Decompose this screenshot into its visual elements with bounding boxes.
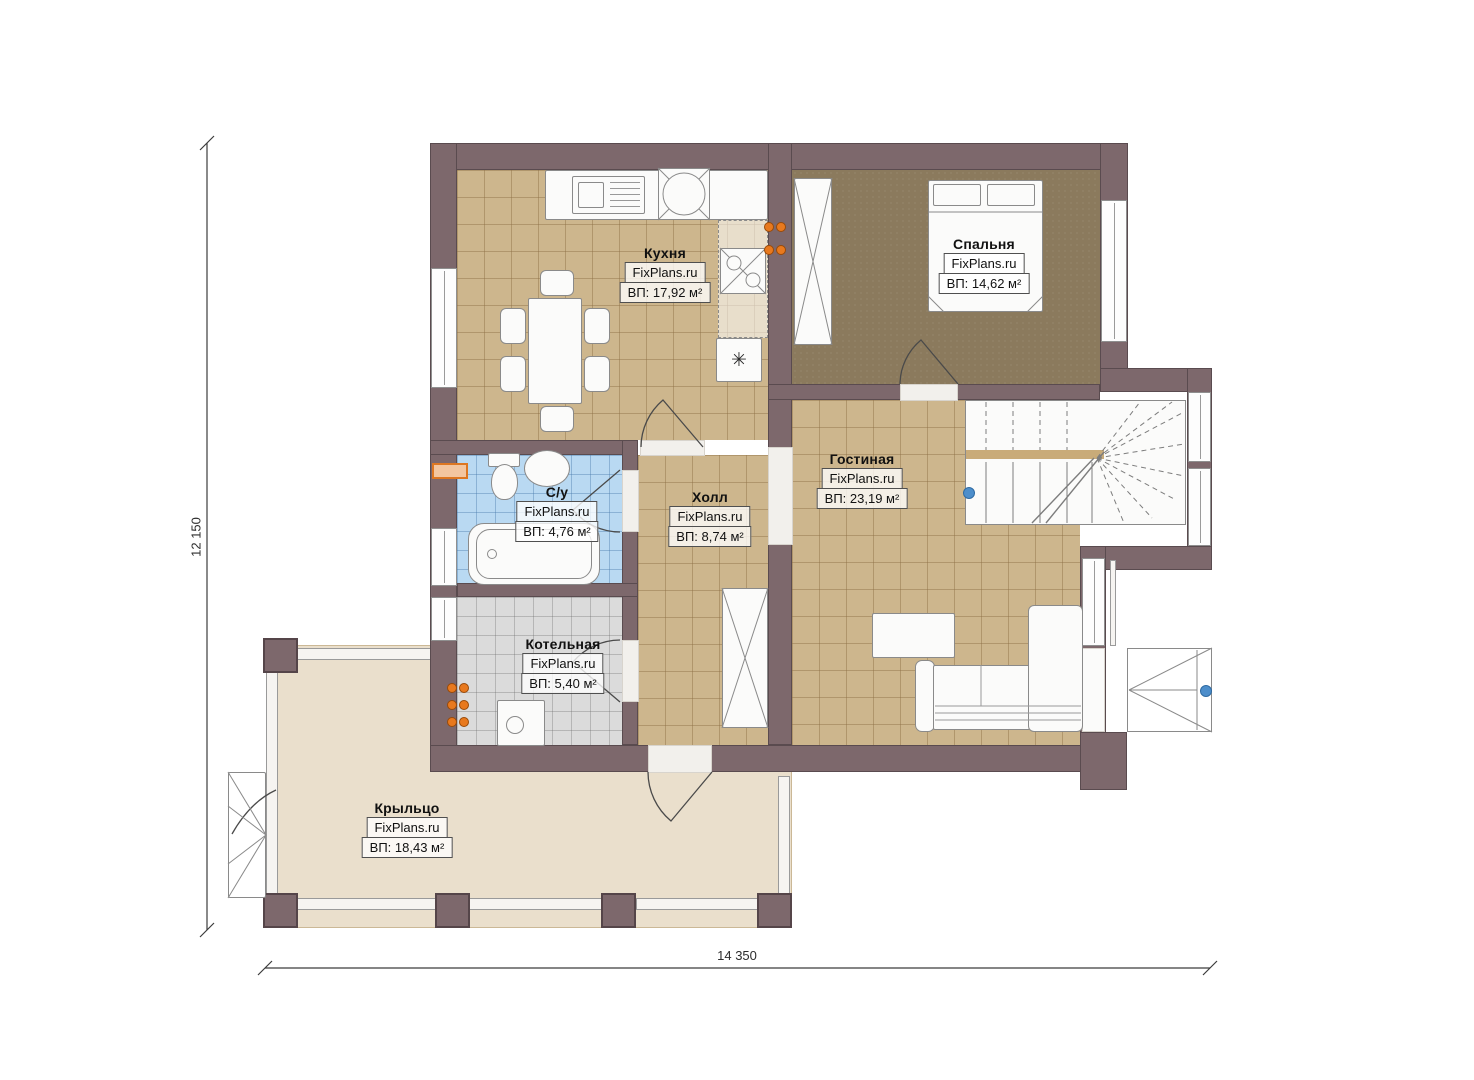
- staircase-area: [965, 400, 1186, 525]
- window-kitchen-left: [431, 268, 457, 388]
- window-bedroom-right: [1101, 200, 1127, 342]
- dimension-width: 14 350: [717, 948, 757, 963]
- coffee-table: [872, 613, 955, 658]
- room-area: ВП: 14,62 м²: [939, 273, 1030, 294]
- toilet-bowl: [491, 464, 518, 500]
- staircase-landing-edge: [966, 450, 1104, 459]
- boiler-unit-dial: [506, 716, 524, 734]
- bathtub-drain: [487, 549, 497, 559]
- sofa-chaise: [1028, 605, 1083, 732]
- watermark: FixPlans.ru: [669, 506, 750, 527]
- room-area: ВП: 18,43 м²: [362, 837, 453, 858]
- dining-chair: [540, 406, 574, 432]
- porch-railing-right: [778, 776, 790, 895]
- porch-pillar-bottom-right: [757, 893, 792, 928]
- dining-chair: [540, 270, 574, 296]
- entrance-door-opening: [1082, 648, 1105, 732]
- window-stairs-bay-2: [1188, 468, 1211, 546]
- sofa-seat: [933, 665, 1030, 730]
- room-area: ВП: 4,76 м²: [515, 521, 598, 542]
- kitchen-sink-bowl: [578, 182, 604, 208]
- porch-pillar-top-left: [263, 638, 298, 673]
- wall-bay-bottom: [1100, 546, 1212, 570]
- window-boiler-left: [431, 597, 457, 641]
- kitchen-sink-drainer: [610, 182, 640, 208]
- wall-kitchen-hall-right: [768, 143, 792, 745]
- window-stairs-bay-1: [1188, 392, 1211, 462]
- boiler-socket-icon: [447, 700, 469, 710]
- room-name: Спальня: [953, 236, 1015, 252]
- bed-pillow: [987, 184, 1035, 206]
- room-name: Котельная: [525, 636, 600, 652]
- porch-side-steps: [228, 772, 266, 898]
- entrance-side-rail: [1110, 560, 1116, 646]
- kitchen-corner-unit: [658, 168, 710, 220]
- room-area: ВП: 17,92 м²: [620, 282, 711, 303]
- dining-chair: [500, 356, 526, 392]
- room-label-bathroom: С/у FixPlans.ru ВП: 4,76 м²: [515, 484, 598, 542]
- utility-marker: [963, 487, 975, 499]
- dimension-height: 12 150: [189, 517, 204, 557]
- door-opening-kitchen-hall: [640, 440, 705, 456]
- kitchen-wall-socket-icon: [764, 222, 786, 232]
- room-area: ВП: 5,40 м²: [521, 673, 604, 694]
- freezer-icon: ✳: [731, 349, 747, 372]
- watermark: FixPlans.ru: [624, 262, 705, 283]
- porch-pillar-bottom-left: [263, 893, 298, 928]
- watermark: FixPlans.ru: [366, 817, 447, 838]
- window-living-right: [1082, 558, 1105, 646]
- porch-railing-bottom-3: [636, 898, 762, 910]
- porch-pillar-bottom-mid1: [435, 893, 470, 928]
- boiler-socket-icon: [447, 717, 469, 727]
- room-name: Кухня: [644, 245, 686, 261]
- porch-railing-top: [296, 648, 434, 660]
- wall-bathroom-boiler: [457, 583, 638, 597]
- bathroom-sink: [524, 450, 570, 487]
- room-name: С/у: [546, 484, 568, 500]
- door-opening-hall-porch: [648, 745, 712, 773]
- floor-plan-canvas: ✳: [0, 0, 1474, 1080]
- porch-railing-bottom-2: [468, 898, 605, 910]
- door-opening-bedroom: [900, 384, 958, 401]
- room-label-boiler: Котельная FixPlans.ru ВП: 5,40 м²: [521, 636, 604, 694]
- room-label-kitchen: Кухня FixPlans.ru ВП: 17,92 м²: [620, 245, 711, 303]
- kitchen-stove: [720, 248, 766, 294]
- room-name: Гостиная: [830, 451, 895, 467]
- room-name: Крыльцо: [374, 800, 439, 816]
- room-label-hall: Холл FixPlans.ru ВП: 8,74 м²: [668, 489, 751, 547]
- porch-pillar-bottom-mid2: [601, 893, 636, 928]
- room-label-porch: Крыльцо FixPlans.ru ВП: 18,43 м²: [362, 800, 453, 858]
- kitchen-freezer: ✳: [716, 338, 762, 382]
- wall-bottom: [430, 745, 1106, 772]
- wall-left: [430, 143, 457, 772]
- room-label-bedroom: Спальня FixPlans.ru ВП: 14,62 м²: [939, 236, 1030, 294]
- wall-corner-bottom-right: [1080, 732, 1127, 790]
- dining-table: [528, 298, 582, 404]
- window-bathroom-left: [431, 528, 457, 586]
- kitchen-wall-socket-icon: [764, 245, 786, 255]
- bed-pillow: [933, 184, 981, 206]
- porch-railing-left: [266, 672, 278, 895]
- hall-closet: [722, 588, 768, 728]
- watermark: FixPlans.ru: [943, 253, 1024, 274]
- dining-chair: [584, 308, 610, 344]
- room-label-living: Гостиная FixPlans.ru ВП: 23,19 м²: [817, 451, 908, 509]
- watermark: FixPlans.ru: [516, 501, 597, 522]
- room-area: ВП: 23,19 м²: [817, 488, 908, 509]
- door-opening-boiler: [622, 640, 639, 702]
- dining-chair: [584, 356, 610, 392]
- room-area: ВП: 8,74 м²: [668, 526, 751, 547]
- porch-railing-bottom-1: [296, 898, 437, 910]
- passage-hall-living: [768, 447, 793, 545]
- utility-marker: [1200, 685, 1212, 697]
- boiler-socket-icon: [447, 683, 469, 693]
- room-name: Холл: [692, 489, 728, 505]
- watermark: FixPlans.ru: [522, 653, 603, 674]
- sofa-armrest: [915, 660, 935, 732]
- bathroom-radiator: [432, 463, 468, 479]
- watermark: FixPlans.ru: [821, 468, 902, 489]
- door-opening-bathroom: [622, 470, 639, 532]
- dining-chair: [500, 308, 526, 344]
- bedroom-wardrobe: [794, 178, 832, 345]
